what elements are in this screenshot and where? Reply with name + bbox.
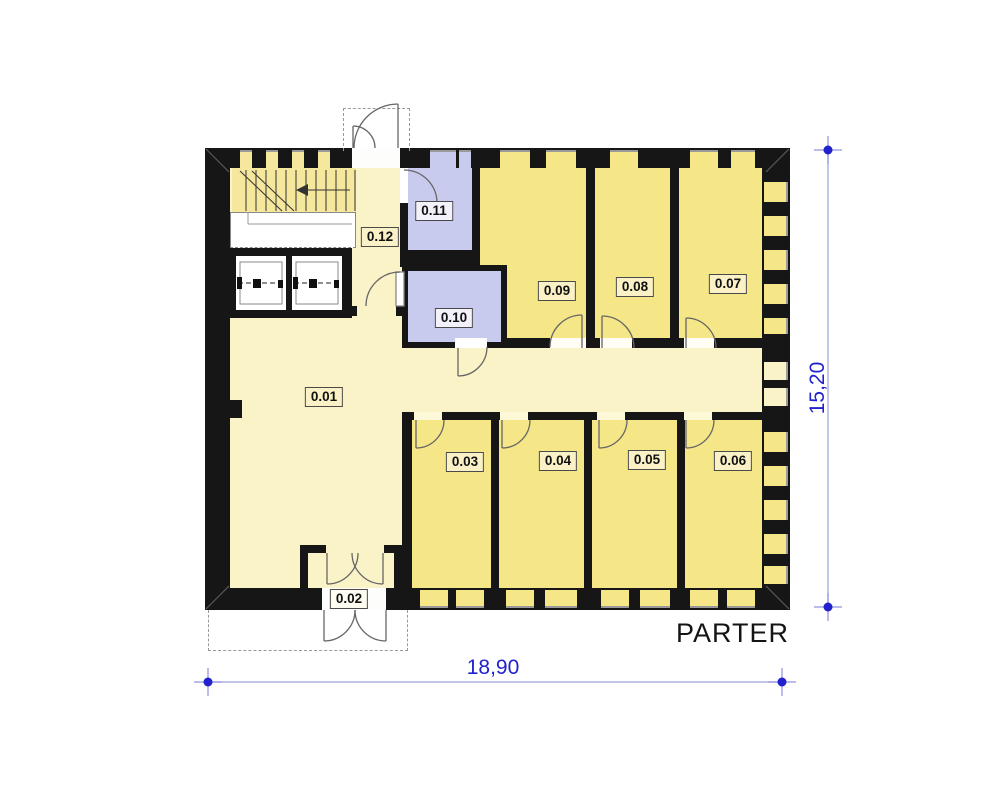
window-slit — [764, 250, 788, 270]
room-area-0-08 — [595, 168, 670, 338]
window-slit — [731, 150, 755, 170]
window-slit — [500, 150, 530, 170]
room-area-0-03 — [412, 420, 491, 588]
window-slit — [764, 500, 788, 520]
window-slit — [601, 590, 629, 608]
window-slit — [292, 150, 304, 170]
door-gap-lobby — [357, 306, 396, 316]
door-gap-main-entrance — [352, 148, 400, 168]
window-slit — [764, 284, 788, 304]
dimension-width-value: 18,90 — [433, 656, 553, 680]
wall-segment — [670, 168, 679, 348]
wall-segment — [402, 412, 412, 590]
window-slit — [727, 590, 755, 608]
room-label-0-11: 0.11 — [415, 201, 453, 221]
window-slit — [764, 216, 788, 236]
exit-platform-outline — [208, 610, 408, 651]
wall-vestibule — [300, 545, 326, 553]
dimension-height-value: 15,20 — [806, 343, 830, 433]
room-label-0-03: 0.03 — [446, 452, 484, 472]
room-label-0-10: 0.10 — [435, 308, 473, 328]
wall-segment — [584, 420, 592, 590]
room-area-0-06 — [685, 420, 762, 588]
window-slit — [764, 534, 788, 554]
room-area-0-07 — [679, 168, 762, 338]
elevator-shaft-right — [292, 256, 342, 310]
window-slit — [430, 150, 456, 170]
window-slit — [459, 150, 471, 170]
room-label-0-06: 0.06 — [714, 451, 752, 471]
window-slit — [764, 466, 788, 486]
door-gap-0-04 — [500, 412, 528, 420]
door-gap-0-10 — [455, 338, 487, 348]
door-gap-0-08 — [600, 338, 632, 348]
wall-vestibule — [394, 545, 402, 590]
floor-plan: 0.01 0.02 0.03 0.04 0.05 0.06 0.07 0.08 … — [0, 0, 1000, 800]
window-slit — [240, 150, 252, 170]
room-label-0-05: 0.05 — [628, 450, 666, 470]
page-title: PARTER — [676, 618, 789, 649]
window-slit — [545, 590, 577, 608]
room-label-0-07: 0.07 — [709, 274, 747, 294]
window-slit — [420, 590, 448, 608]
window-slit — [318, 150, 330, 170]
wall-segment-left — [205, 148, 230, 610]
window-slit — [764, 362, 788, 380]
window-slit — [764, 432, 788, 452]
window-slit — [690, 150, 718, 170]
window-slit — [456, 590, 484, 608]
room-label-0-09: 0.09 — [538, 281, 576, 301]
door-gap-0-03 — [414, 412, 442, 420]
door-gap-0-07 — [684, 338, 714, 348]
window-slit — [546, 150, 576, 170]
stair-landing-area — [230, 212, 356, 248]
room-label-0-01: 0.01 — [305, 387, 343, 407]
room-area-0-04 — [499, 420, 584, 588]
staircase-area — [232, 168, 356, 212]
wall-segment — [472, 168, 480, 250]
wall-pier — [230, 400, 242, 418]
room-label-0-12: 0.12 — [361, 227, 399, 247]
wall-segment — [491, 420, 499, 590]
window-slit — [640, 590, 670, 608]
window-slit — [764, 182, 788, 202]
door-gap-0-06 — [684, 412, 712, 420]
elevator-shaft-left — [236, 256, 286, 310]
window-slit — [764, 566, 788, 584]
entrance-canopy-outline — [343, 108, 410, 151]
room-area-0-10 — [402, 265, 507, 348]
room-label-0-08: 0.08 — [616, 277, 654, 297]
window-slit — [610, 150, 638, 170]
room-area-0-05 — [592, 420, 677, 588]
wall-segment — [400, 203, 408, 250]
door-gap-0-09 — [550, 338, 586, 348]
window-slit — [506, 590, 534, 608]
door-gap-0-05 — [597, 412, 625, 420]
window-slit — [764, 318, 788, 334]
room-label-0-04: 0.04 — [539, 451, 577, 471]
door-gap-0-11 — [400, 168, 408, 203]
room-label-0-02: 0.02 — [330, 589, 368, 609]
wall-segment — [677, 420, 685, 590]
window-slit — [266, 150, 278, 170]
window-slit — [690, 590, 718, 608]
wall-segment — [586, 168, 595, 348]
window-slit — [764, 388, 788, 406]
